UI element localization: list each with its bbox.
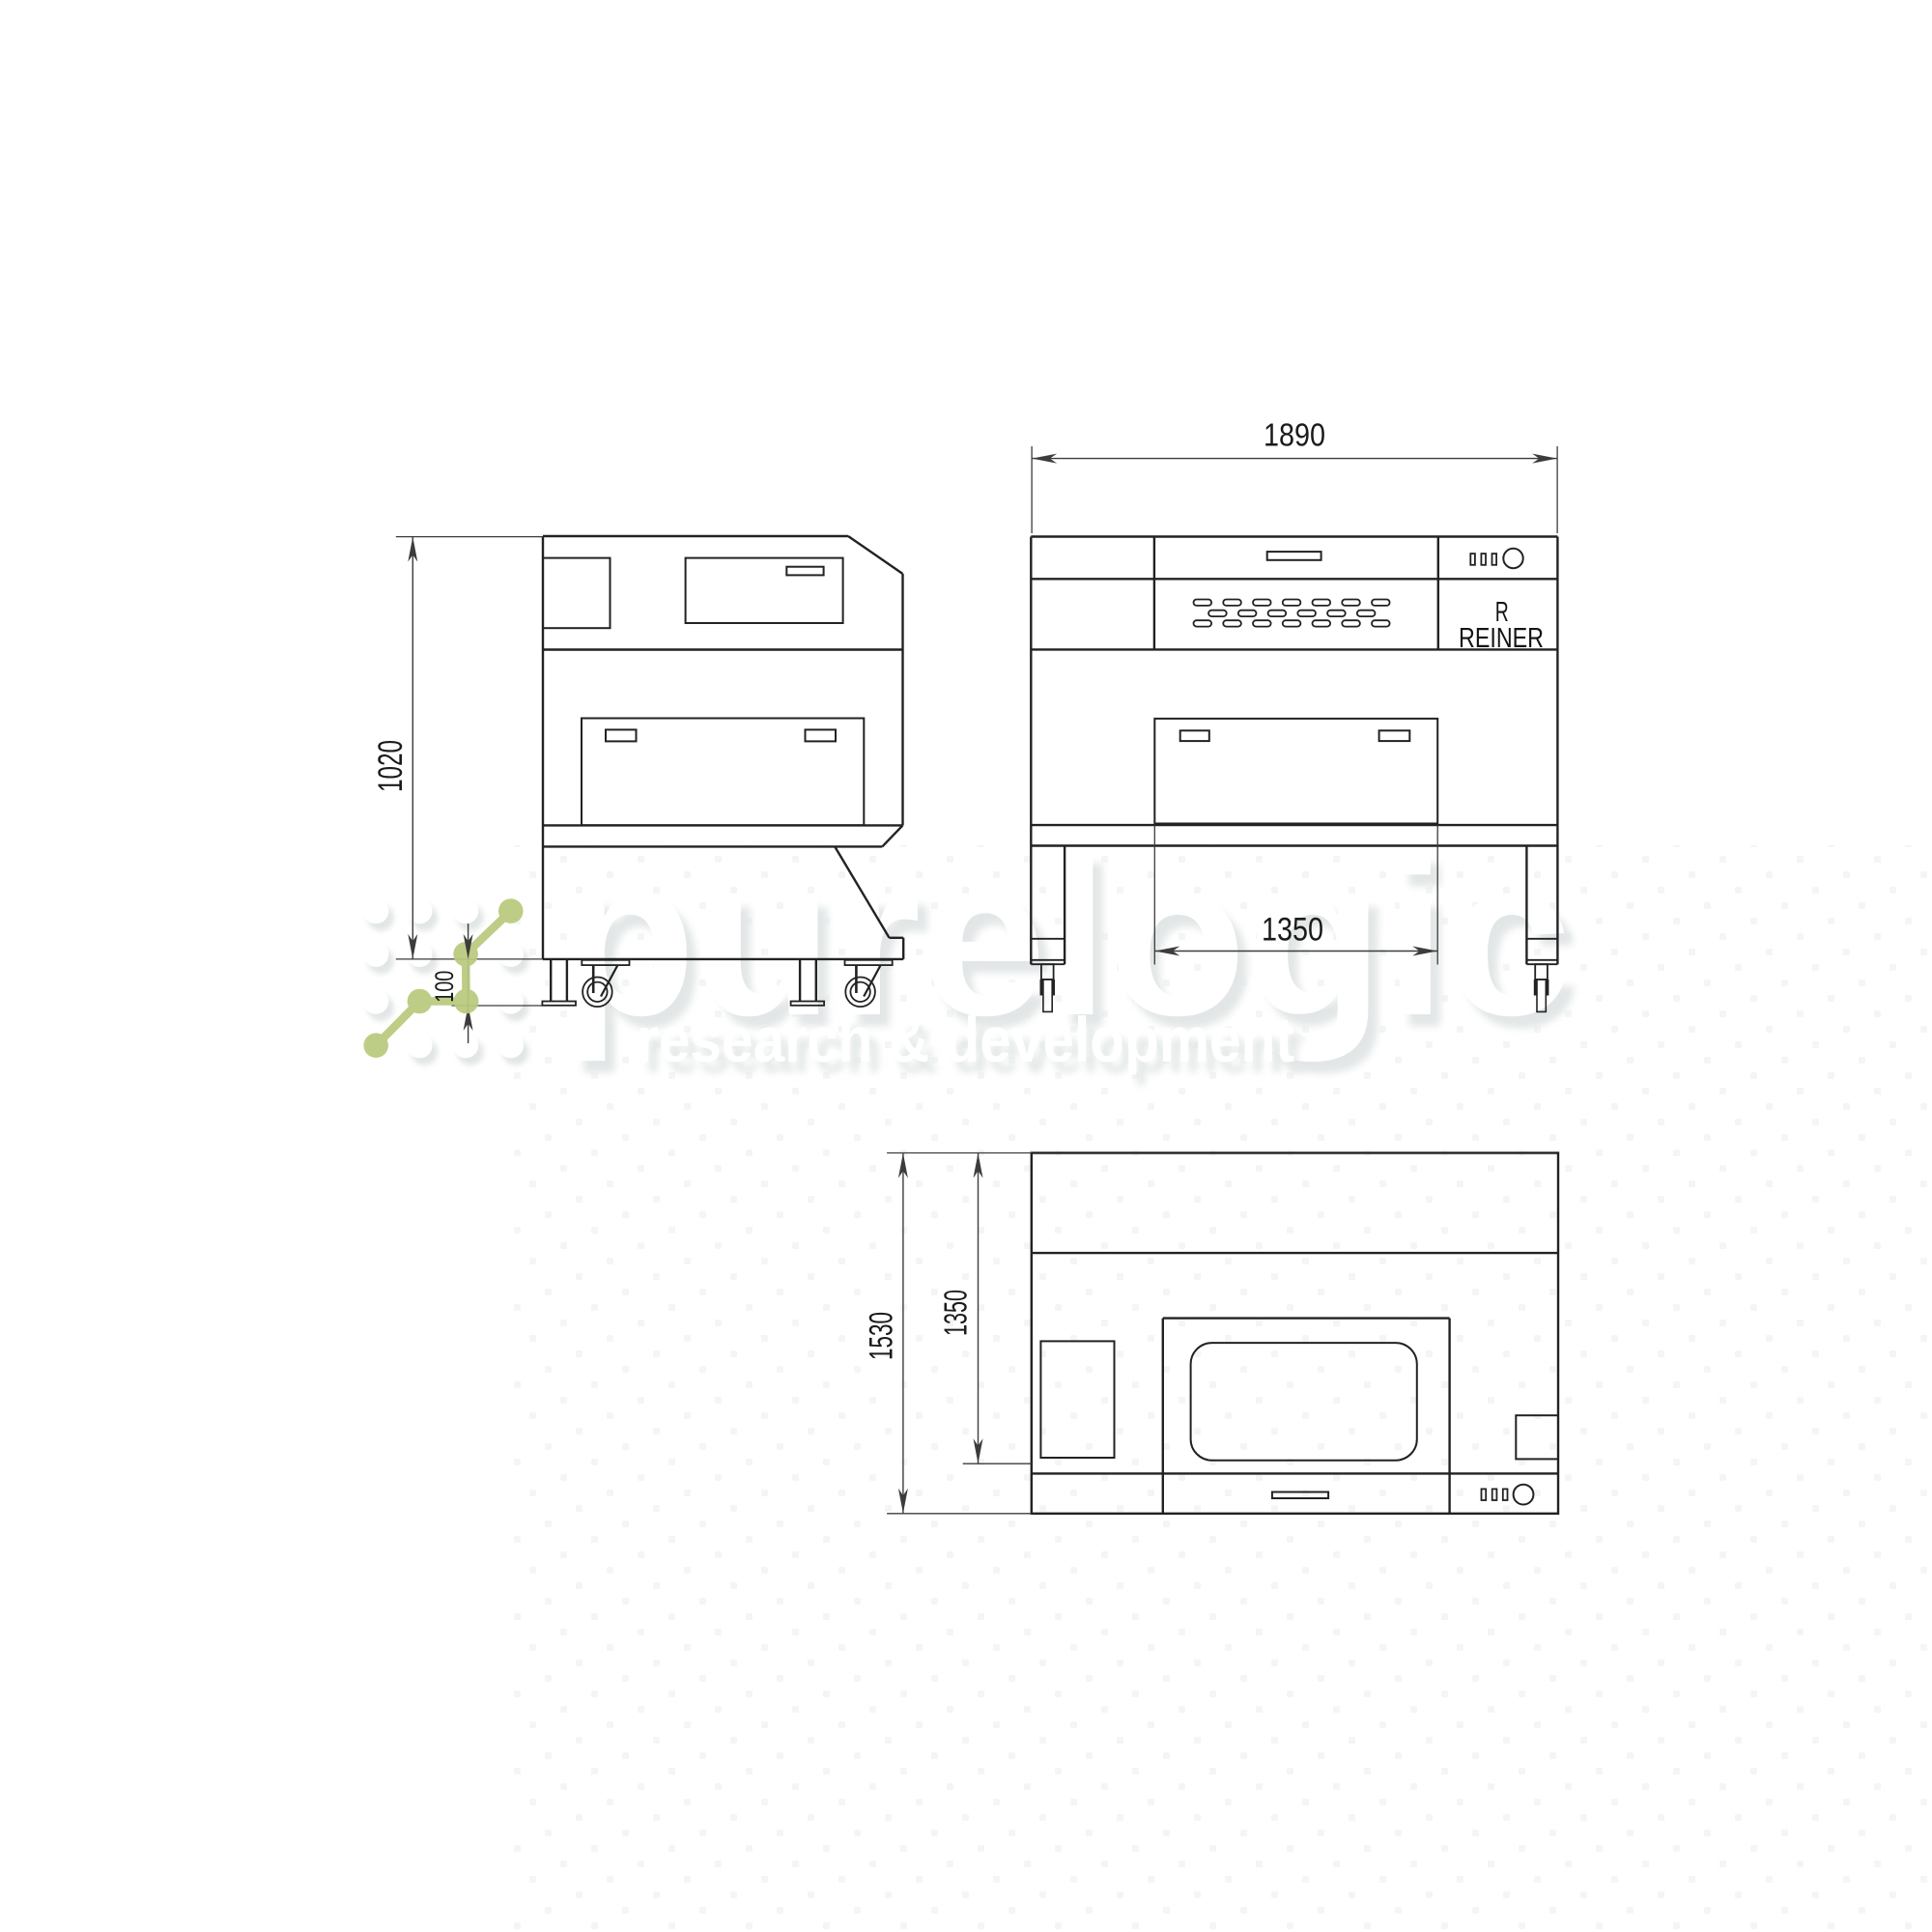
svg-text:1350: 1350 <box>939 1290 975 1336</box>
svg-text:REINER: REINER <box>1459 623 1544 654</box>
svg-text:1020: 1020 <box>371 740 410 792</box>
svg-text:100: 100 <box>430 971 459 1003</box>
svg-text:1890: 1890 <box>1264 418 1325 454</box>
svg-text:research & development: research & development <box>637 1004 1294 1075</box>
svg-text:1350: 1350 <box>1262 912 1323 949</box>
svg-text:1530: 1530 <box>863 1312 899 1360</box>
